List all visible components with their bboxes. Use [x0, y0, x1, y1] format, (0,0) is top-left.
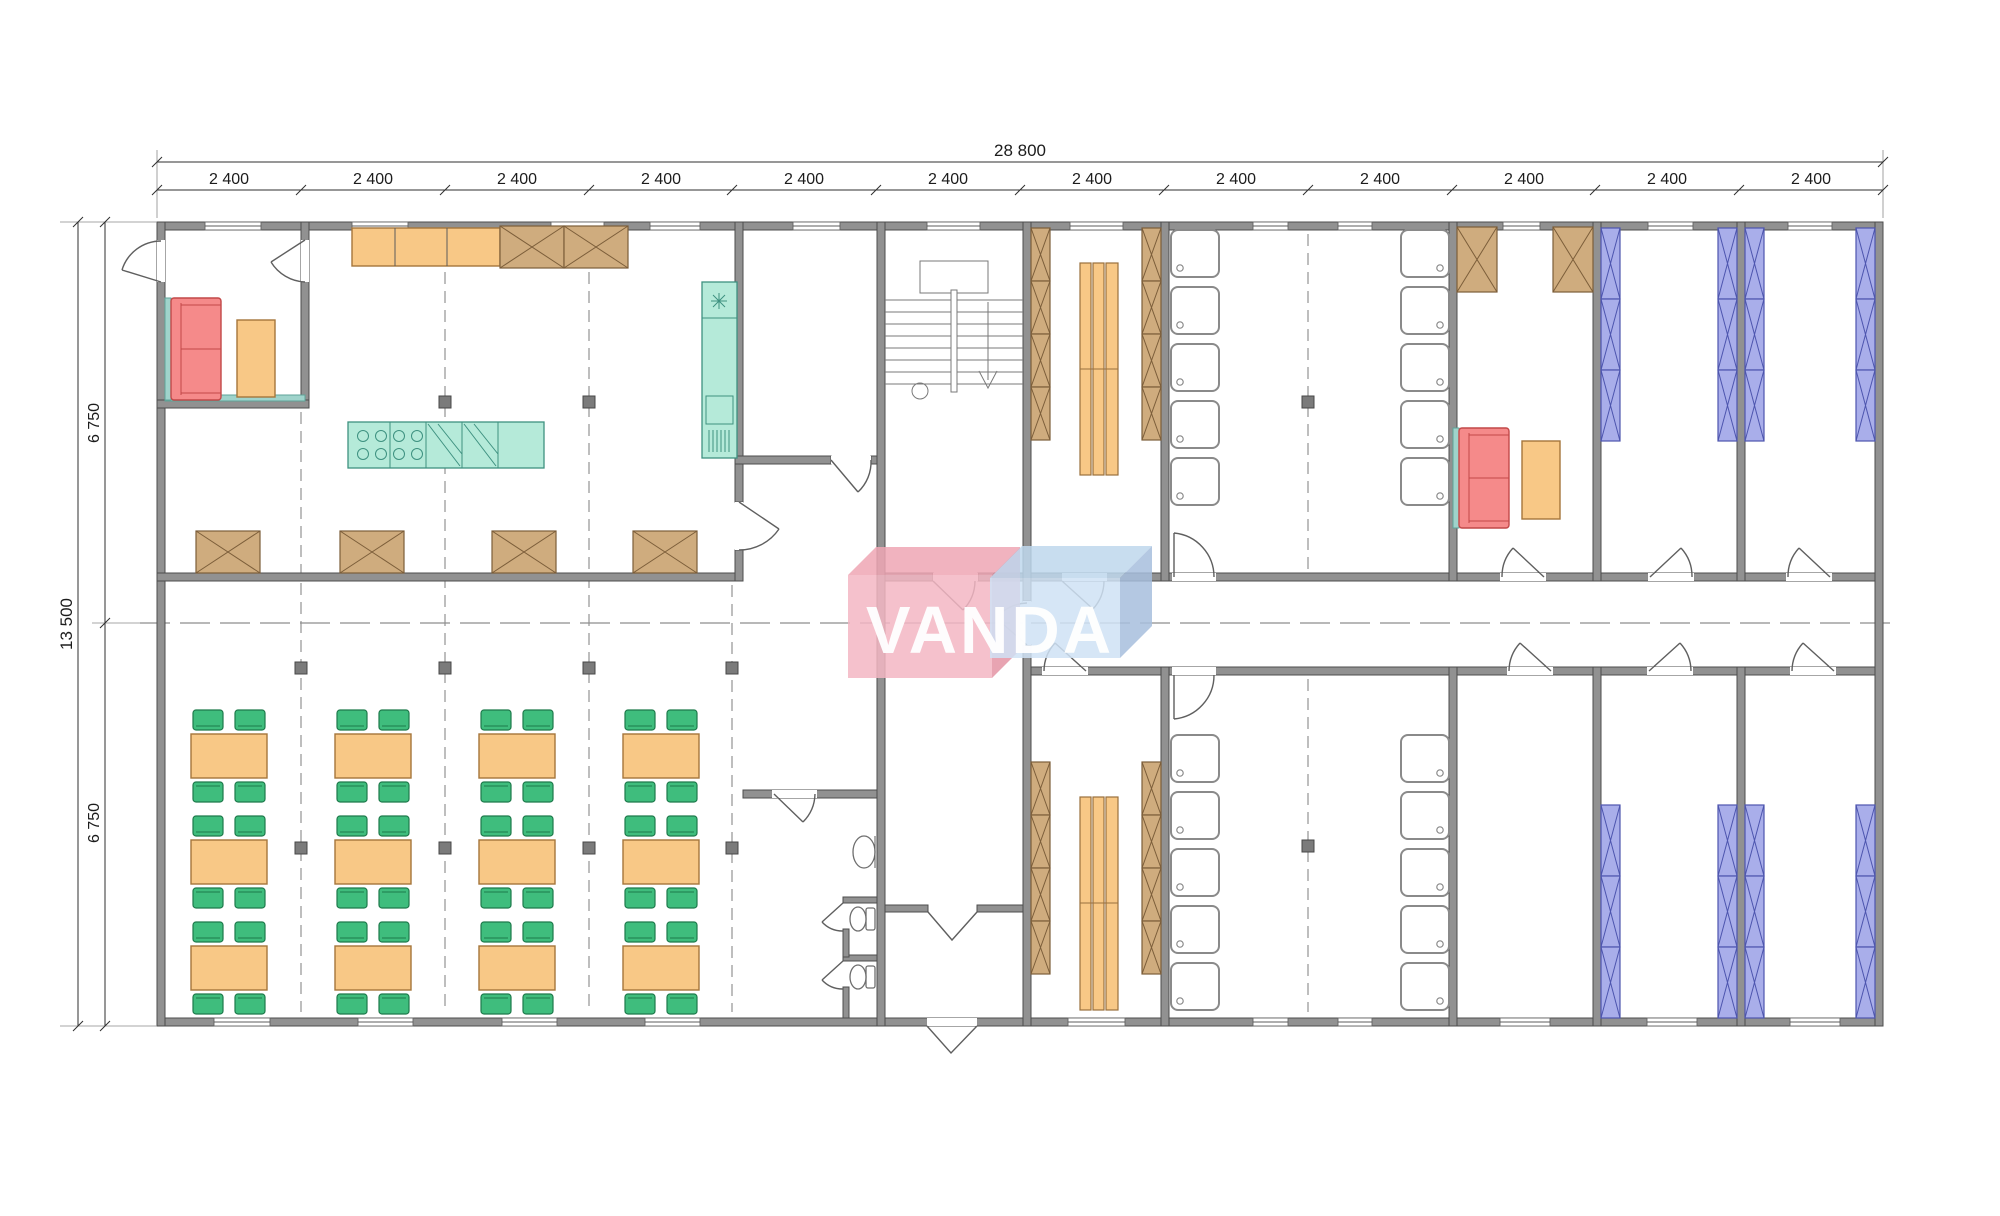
washbasin [853, 836, 875, 868]
main-entrance-double-door [927, 1026, 977, 1053]
stair-hall-east-wall [1023, 222, 1031, 601]
svg-text:2 400: 2 400 [641, 171, 681, 188]
dim-half-height: 6 750 [86, 403, 103, 443]
dim-overall-width: 28 800 [994, 141, 1046, 160]
floor-plan-sheet: 28 800 2 400 2 400 2 400 2 400 2 400 2 4… [0, 0, 2000, 1216]
shower-room-bottom [1171, 735, 1449, 1010]
stair-direction-arrow [979, 302, 997, 388]
svg-text:2 400: 2 400 [1072, 171, 1112, 188]
vestibule-wall [885, 905, 928, 912]
stairwell [885, 261, 1023, 399]
dim-half-height: 6 750 [86, 803, 103, 843]
svg-text:2 400: 2 400 [1504, 171, 1544, 188]
changing-room-bottom [1031, 762, 1161, 1010]
side-table [237, 320, 275, 397]
changing-room-top [1031, 228, 1161, 475]
watermark-logo: VANDA [848, 546, 1152, 678]
svg-text:2 400: 2 400 [1647, 171, 1687, 188]
svg-text:2 400: 2 400 [1216, 171, 1256, 188]
dim-module: 2 400 [209, 171, 249, 188]
bench [1080, 797, 1118, 1010]
svg-text:2 400: 2 400 [784, 171, 824, 188]
wc-area [850, 836, 875, 989]
freezer-icon [711, 293, 727, 309]
shower-room-top [1171, 230, 1449, 505]
coffee-table [1522, 441, 1560, 519]
exterior-door-canteen [122, 241, 161, 282]
svg-text:2 400: 2 400 [497, 171, 537, 188]
stair-start-marker [912, 383, 928, 399]
kitchen-south-wall [157, 573, 743, 581]
dimensions-left: 13 500 6 750 6 750 [57, 217, 157, 1031]
svg-text:2 400: 2 400 [1360, 171, 1400, 188]
sofa-lounge [1453, 428, 1509, 528]
svg-text:2 400: 2 400 [1791, 171, 1831, 188]
vestibule-double-door [928, 912, 977, 940]
dim-overall-height: 13 500 [57, 598, 76, 650]
floor-plan-drawing: 28 800 2 400 2 400 2 400 2 400 2 400 2 4… [0, 0, 2000, 1216]
bench [1080, 263, 1118, 475]
sofa-entry-room [165, 298, 221, 400]
kitchen-counter [352, 228, 500, 266]
fridge-freezer [702, 282, 737, 458]
svg-text:2 400: 2 400 [353, 171, 393, 188]
kitchen-island [348, 422, 544, 468]
main-entrance-opening [927, 1018, 977, 1026]
watermark-text: VANDA [866, 593, 1114, 668]
lounge-room [1453, 227, 1593, 528]
dimensions-top: 28 800 2 400 2 400 2 400 2 400 2 400 2 4… [152, 141, 1888, 218]
svg-text:2 400: 2 400 [928, 171, 968, 188]
